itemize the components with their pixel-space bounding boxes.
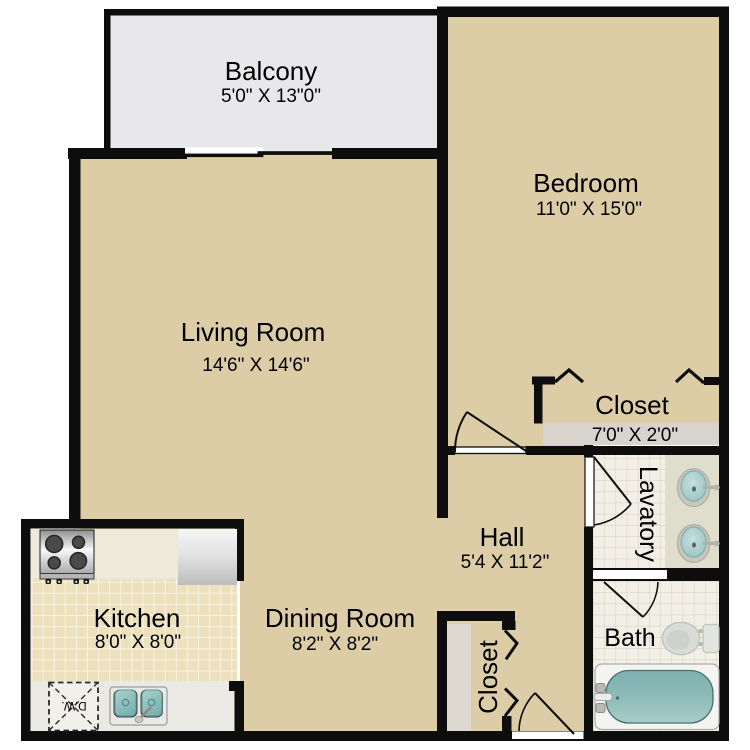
svg-text:7'0" X 2'0": 7'0" X 2'0" <box>592 425 678 446</box>
svg-text:D.W.: D.W. <box>61 699 86 712</box>
svg-text:Living Room: Living Room <box>181 317 326 347</box>
svg-text:Dining Room: Dining Room <box>265 603 415 633</box>
svg-text:Balcony: Balcony <box>225 56 318 86</box>
svg-text:5'4 X 11'2": 5'4 X 11'2" <box>461 552 550 573</box>
svg-text:8'0" X 8'0": 8'0" X 8'0" <box>95 632 181 653</box>
svg-text:14'6" X 14'6": 14'6" X 14'6" <box>202 355 309 376</box>
svg-text:Closet: Closet <box>595 390 669 420</box>
svg-text:Kitchen: Kitchen <box>94 603 181 633</box>
svg-text:Lavatory: Lavatory <box>634 466 662 562</box>
svg-text:Closet: Closet <box>473 639 503 713</box>
svg-text:Bedroom: Bedroom <box>533 168 639 198</box>
svg-text:5'0" X 13"0": 5'0" X 13"0" <box>221 86 321 107</box>
svg-text:8'2" X 8'2": 8'2" X 8'2" <box>292 634 378 655</box>
svg-text:11'0" X 15'0": 11'0" X 15'0" <box>536 199 642 220</box>
svg-text:Hall: Hall <box>480 522 525 552</box>
svg-text:Bath: Bath <box>604 624 655 652</box>
